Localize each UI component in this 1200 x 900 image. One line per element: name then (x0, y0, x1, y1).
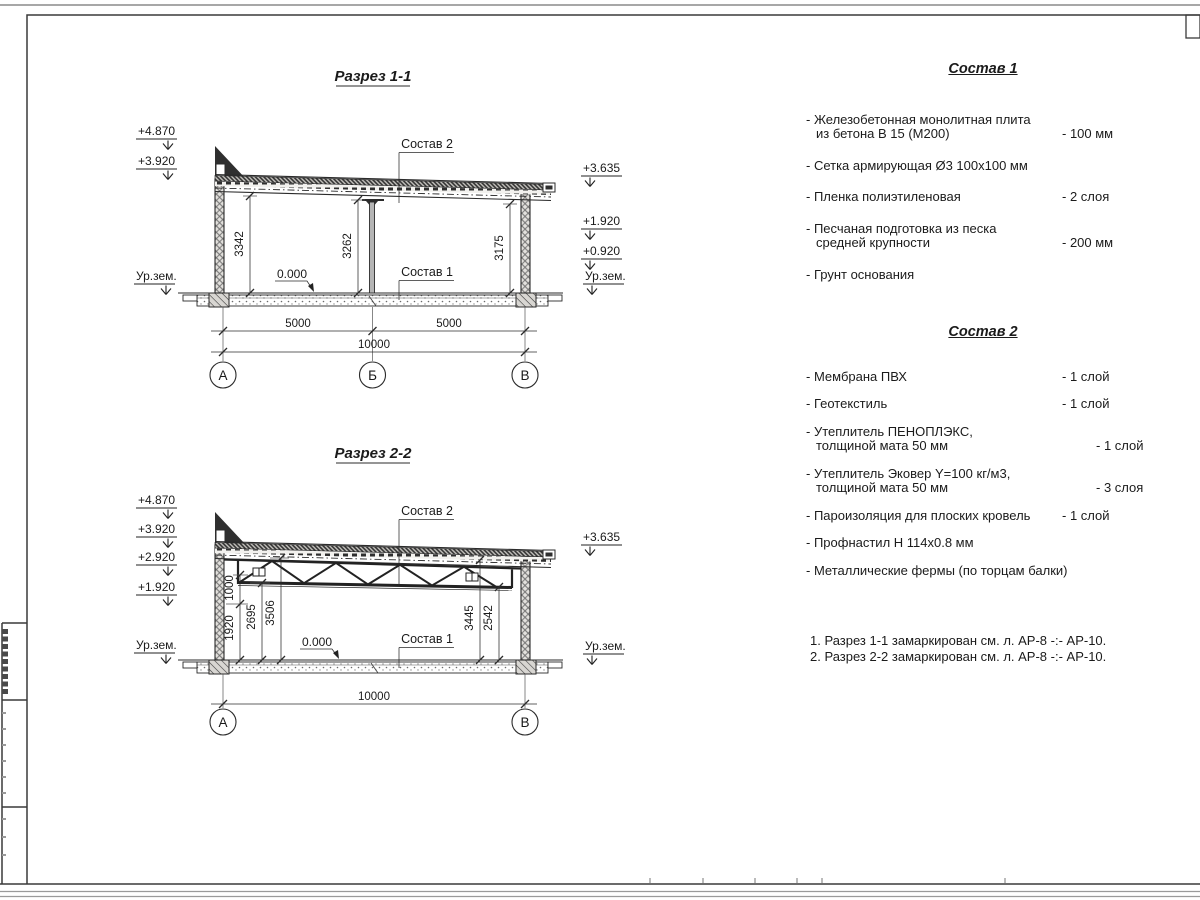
svg-text:+3.920: +3.920 (138, 522, 175, 536)
corner-stamp-box (1186, 15, 1200, 38)
svg-text:+0.920: +0.920 (583, 244, 620, 258)
roof-1 (215, 175, 555, 201)
svg-text:Ур.зем.: Ур.зем. (136, 269, 177, 283)
dim-10000-1: 10000 (358, 339, 390, 351)
sostav1-ref-2: Состав 1 (401, 632, 453, 646)
svg-text:+3.635: +3.635 (583, 530, 620, 544)
svg-text:+3.635: +3.635 (583, 161, 620, 175)
svg-text:+4.870: +4.870 (138, 493, 175, 507)
notes: 1. Разрез 1-1 замаркирован см. л. АР-8 -… (810, 633, 1106, 664)
title-block-ticks (650, 878, 1005, 883)
dim-10000-2: 10000 (358, 691, 390, 703)
elevations-2: +4.870 +3.920 +2.920 +1.920 Ур.зем. +3.6… (134, 493, 626, 665)
walls-1 (215, 146, 530, 293)
dim-1920: 1920 (224, 615, 236, 641)
side-stamp-boxes (2, 623, 27, 884)
dims-bottom-1: 5000 5000 10000 (211, 307, 537, 361)
list-item: - Утеплитель Эковер Y=100 кг/м3, толщино… (806, 467, 1160, 496)
dim-2542: 2542 (483, 605, 495, 631)
svg-text:0.000: 0.000 (302, 635, 332, 649)
list-item: - Грунт основания (806, 268, 1160, 283)
elevations-1: +4.870 +3.920 Ур.зем. +3.635 +1.920 +0.9… (134, 124, 626, 295)
svg-text:+2.920: +2.920 (138, 550, 175, 564)
dim-5000-a: 5000 (285, 318, 311, 330)
sostav2-list: Состав 2 - Мембрана ПВХ - 1 слой - Геоте… (806, 325, 1160, 591)
list-item: - Утеплитель ПЕНОПЛЭКС, толщиной мата 50… (806, 425, 1160, 454)
dims-bottom-2: 10000 (211, 674, 537, 708)
dim-3262: 3262 (342, 233, 354, 259)
list-item: - Геотекстиль - 1 слой (806, 397, 1160, 412)
svg-text:+4.870: +4.870 (138, 124, 175, 138)
axis-A-1: А (218, 368, 227, 383)
dims-vertical-right-2: 3445 2542 (464, 556, 503, 664)
list-item: - Пленка полиэтиленовая - 2 слоя (806, 190, 1160, 205)
zero-level-1: 0.000 (275, 267, 314, 292)
list-item: - Профнастил Н 114x0.8 мм (806, 536, 1160, 551)
floor-slab-2 (178, 660, 563, 674)
dim-3342: 3342 (234, 231, 246, 257)
sostav1-ref-1: Состав 1 (401, 265, 453, 279)
section-1-1: Разрез 1-1 (134, 68, 626, 388)
sostav2-ref-1: Состав 2 (401, 137, 453, 151)
grid-axes-2: А В (210, 709, 538, 735)
note-2: 2. Разрез 2-2 замаркирован см. л. АР-8 -… (810, 649, 1106, 665)
list-item: - Песчаная подготовка из песка средней к… (806, 222, 1160, 251)
note-1: 1. Разрез 1-1 замаркирован см. л. АР-8 -… (810, 633, 1106, 649)
dim-1000: 1000 (224, 575, 236, 601)
list-item: - Сетка армирующая Ø3 100x100 мм (806, 159, 1160, 174)
dim-5000-b: 5000 (436, 318, 462, 330)
svg-text:+3.920: +3.920 (138, 154, 175, 168)
list-item: - Металлические фермы (по торцам балки) (806, 564, 1160, 579)
svg-text:+1.920: +1.920 (138, 580, 175, 594)
list-item: - Мембрана ПВХ - 1 слой (806, 370, 1160, 385)
sostav1-list: Состав 1 - Железобетонная монолитная пли… (806, 62, 1160, 299)
list-item: - Пароизоляция для плоских кровель - 1 с… (806, 509, 1160, 524)
floor-slab-1 (178, 293, 563, 307)
section-2-2-title: Разрез 2-2 (334, 445, 412, 462)
list-item: - Железобетонная монолитная плита из бет… (806, 113, 1160, 142)
dim-3175: 3175 (494, 235, 506, 261)
zero-level-2: 0.000 (300, 635, 339, 659)
dim-3506: 3506 (265, 600, 277, 626)
sostav2-ref-2: Состав 2 (401, 504, 453, 518)
column-B (370, 202, 375, 293)
sostav1-title: Состав 1 (806, 62, 1160, 77)
section-1-1-title: Разрез 1-1 (334, 68, 411, 85)
svg-text:+1.920: +1.920 (583, 214, 620, 228)
grid-axes-1: А Б В (210, 362, 538, 388)
dim-2695: 2695 (246, 604, 258, 630)
axis-V-2: В (520, 715, 529, 730)
svg-text:Ур.зем.: Ур.зем. (585, 269, 626, 283)
axis-A-2: А (218, 715, 227, 730)
svg-text:Ур.зем.: Ур.зем. (585, 639, 626, 653)
ref-labels-1: Состав 2 Состав 1 (399, 137, 454, 300)
sostav2-title: Состав 2 (806, 325, 1160, 340)
svg-text:0.000: 0.000 (277, 267, 307, 281)
section-2-2: Разрез 2-2 (134, 445, 626, 735)
axis-V-1: В (520, 368, 529, 383)
axis-B-1: Б (368, 368, 377, 383)
dim-3445: 3445 (464, 605, 476, 631)
svg-text:Ур.зем.: Ур.зем. (136, 638, 177, 652)
